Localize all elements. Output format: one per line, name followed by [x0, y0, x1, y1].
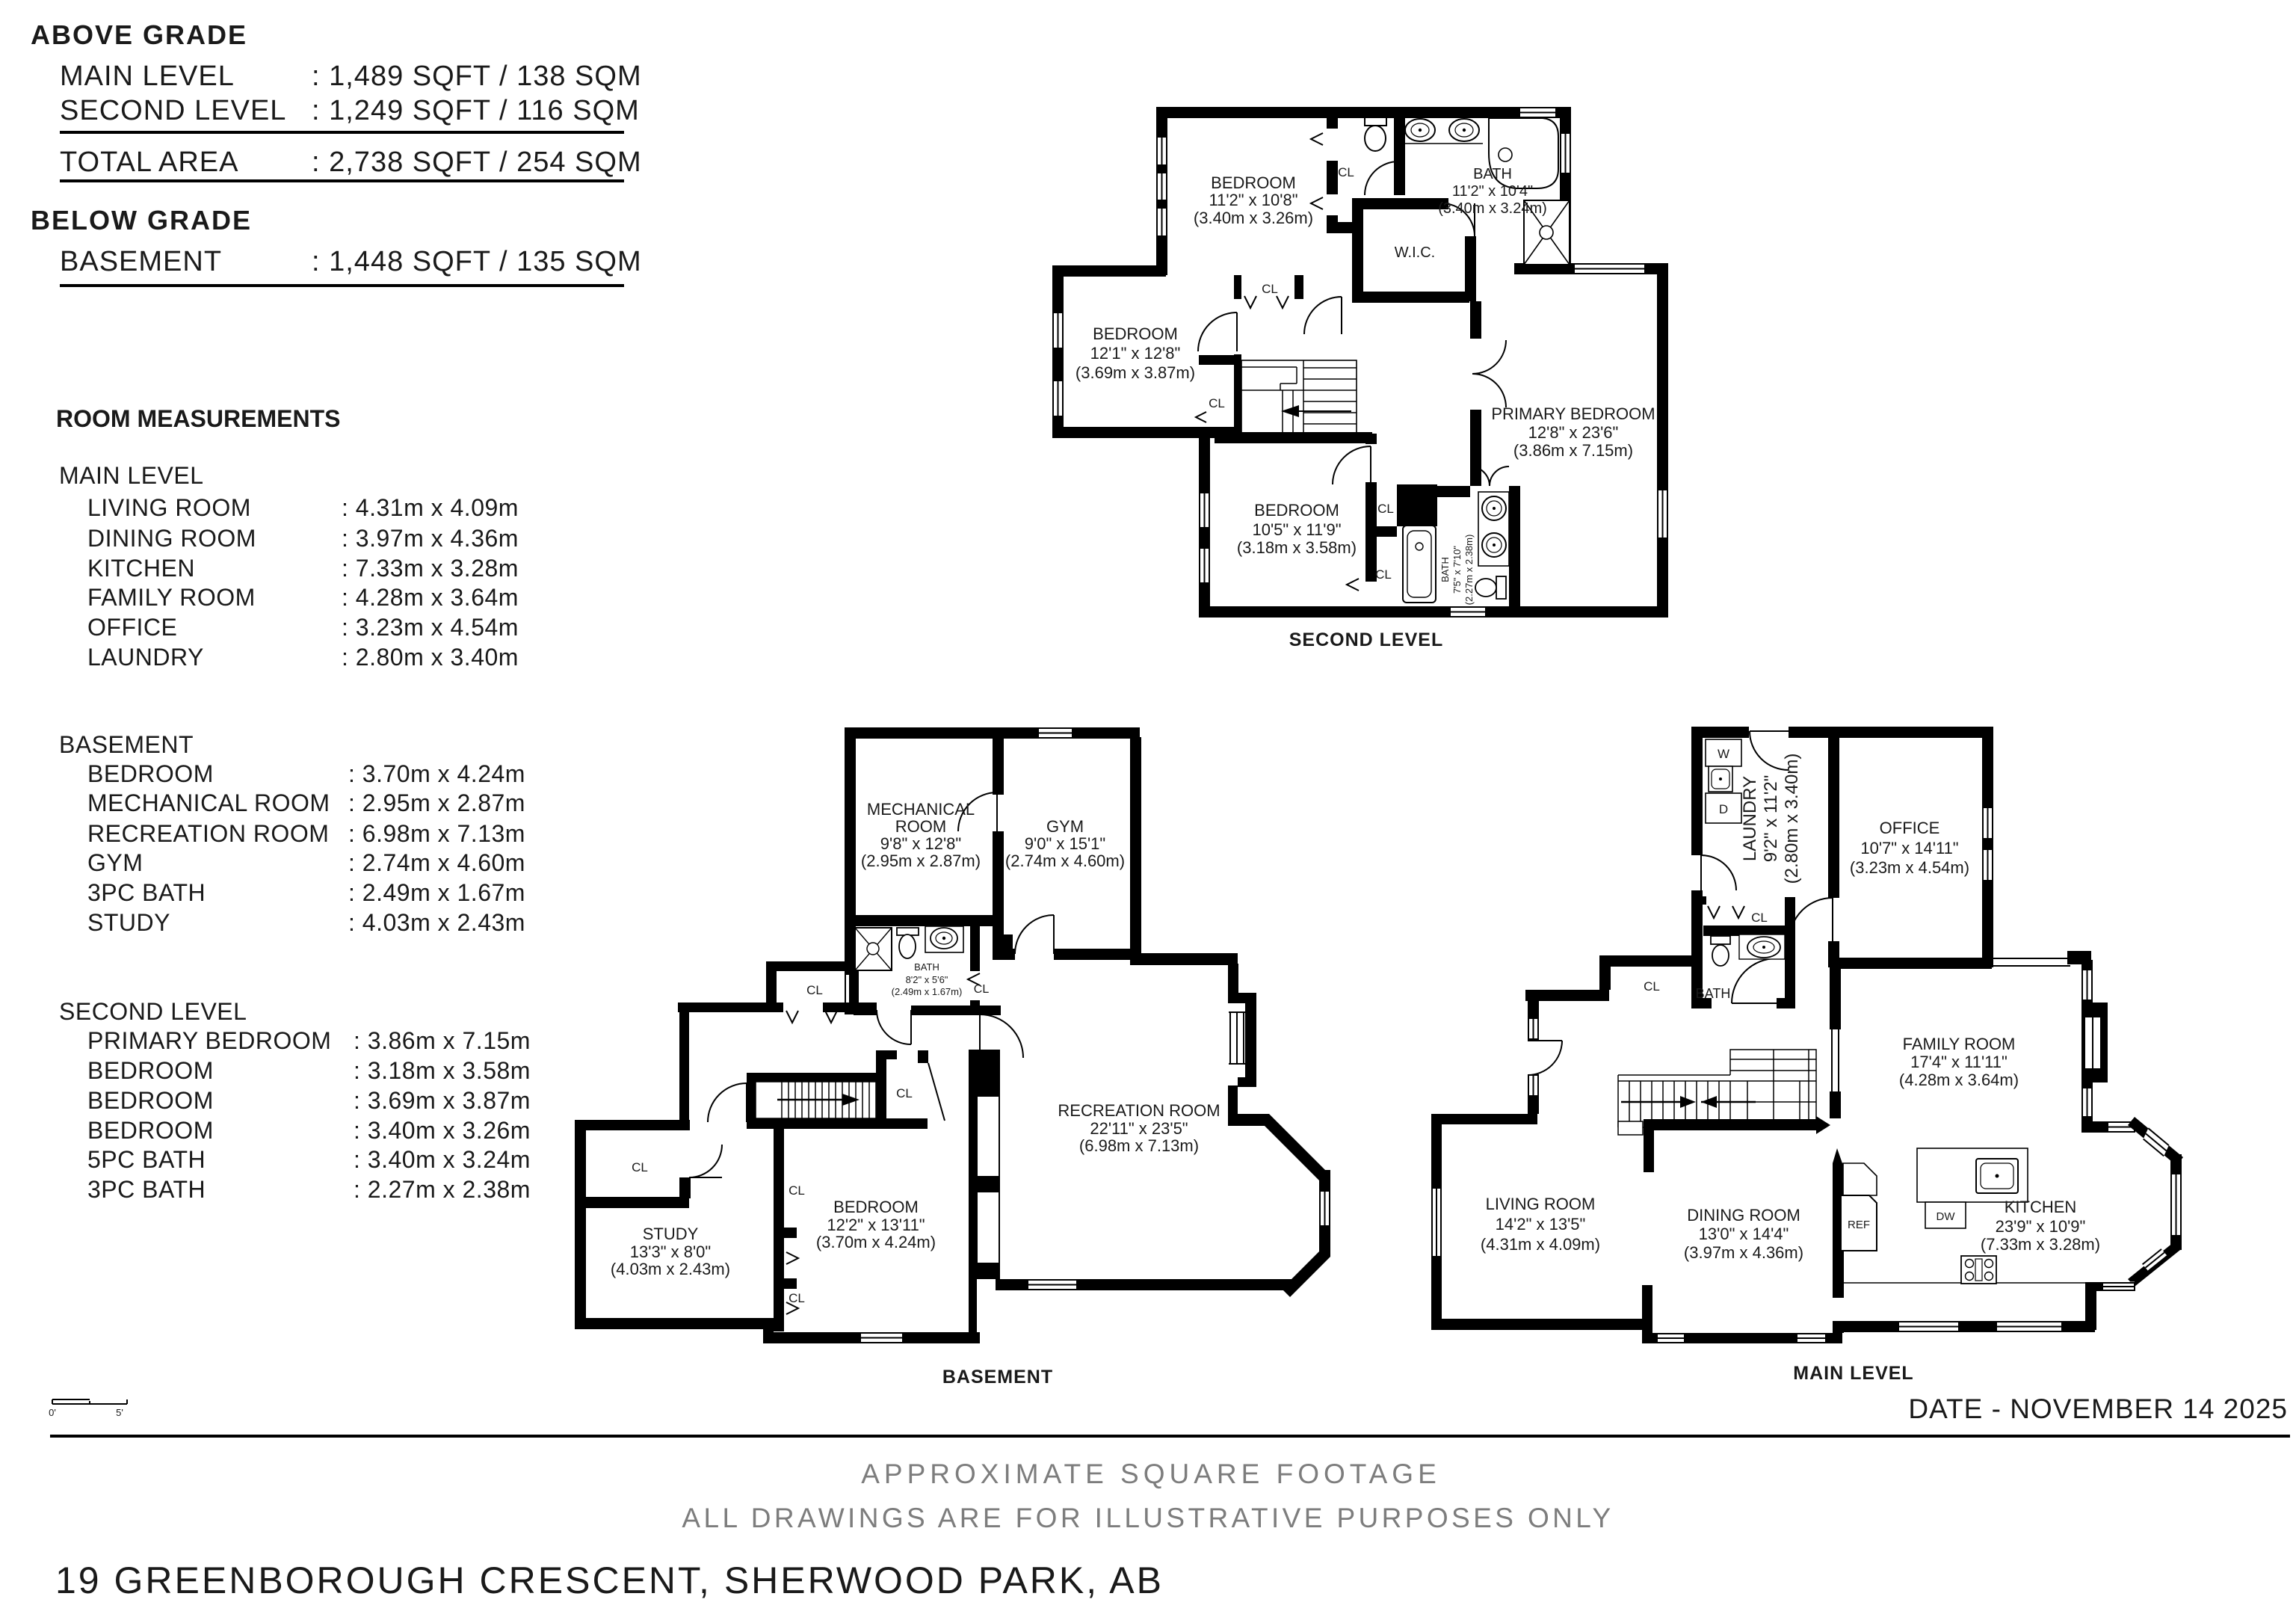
svg-text:: 4.28m x 3.64m: : 4.28m x 3.64m [342, 584, 519, 611]
svg-text:: 3.69m x 3.87m: : 3.69m x 3.87m [354, 1087, 531, 1114]
svg-text:(2.49m x 1.67m): (2.49m x 1.67m) [892, 986, 963, 997]
svg-text:BASEMENT: BASEMENT [60, 246, 222, 277]
svg-text:CL: CL [789, 1291, 805, 1305]
svg-text:: 1,249 SQFT / 116 SQM: : 1,249 SQFT / 116 SQM [312, 95, 640, 126]
svg-text:BEDROOM: BEDROOM [833, 1198, 919, 1216]
svg-text:(2.95m x 2.87m): (2.95m x 2.87m) [861, 851, 981, 870]
svg-text:0': 0' [49, 1407, 56, 1418]
svg-text:OFFICE: OFFICE [87, 614, 177, 641]
svg-text:GYM: GYM [1046, 817, 1084, 836]
svg-text:: 2.27m x 2.38m: : 2.27m x 2.38m [354, 1176, 531, 1203]
svg-text:RECREATION ROOM: RECREATION ROOM [1058, 1101, 1220, 1120]
svg-text:BEDROOM: BEDROOM [87, 760, 214, 787]
svg-text:: 2,738 SQFT / 254 SQM: : 2,738 SQFT / 254 SQM [312, 147, 642, 178]
svg-text:DINING ROOM: DINING ROOM [87, 525, 256, 552]
svg-text:GYM: GYM [87, 849, 143, 876]
svg-text:BEDROOM: BEDROOM [87, 1087, 214, 1114]
svg-text:DINING ROOM: DINING ROOM [1687, 1206, 1800, 1225]
svg-text:CL: CL [1644, 979, 1660, 994]
svg-text:MAIN LEVEL: MAIN LEVEL [60, 61, 235, 92]
svg-text:BATH: BATH [1473, 166, 1512, 182]
svg-text:11'2" x 10'4": 11'2" x 10'4" [1452, 183, 1533, 200]
svg-text:: 3.18m x 3.58m: : 3.18m x 3.58m [354, 1057, 531, 1084]
svg-text:CL: CL [1262, 282, 1278, 296]
svg-text:MECHANICAL ROOM: MECHANICAL ROOM [87, 789, 330, 816]
svg-text:ROOM MEASUREMENTS: ROOM MEASUREMENTS [56, 405, 340, 432]
svg-text:KITCHEN: KITCHEN [2005, 1198, 2077, 1216]
svg-text:3PC BATH: 3PC BATH [87, 879, 206, 906]
svg-text:22'11" x 23'5": 22'11" x 23'5" [1090, 1119, 1188, 1138]
svg-text:: 2.80m x 3.40m: : 2.80m x 3.40m [342, 644, 519, 671]
svg-text:10'5" x 11'9": 10'5" x 11'9" [1252, 520, 1341, 539]
svg-text:: 3.70m x 4.24m: : 3.70m x 4.24m [348, 760, 525, 787]
svg-text:BEDROOM: BEDROOM [1254, 501, 1339, 520]
svg-text:13'0" x 14'4": 13'0" x 14'4" [1699, 1225, 1789, 1243]
svg-text:BELOW GRADE: BELOW GRADE [31, 205, 252, 235]
svg-text:APPROXIMATE SQUARE FOOTAGE: APPROXIMATE SQUARE FOOTAGE [861, 1459, 1441, 1489]
svg-text:(7.33m x 3.28m): (7.33m x 3.28m) [1981, 1235, 2100, 1254]
svg-text:BASEMENT: BASEMENT [942, 1367, 1053, 1388]
svg-text:(2.27m x 2.38m): (2.27m x 2.38m) [1463, 535, 1475, 606]
svg-text:23'9" x 10'9": 23'9" x 10'9" [1996, 1217, 2086, 1236]
svg-text:CL: CL [789, 1183, 805, 1198]
svg-text:(2.80m x 3.40m): (2.80m x 3.40m) [1782, 754, 1802, 884]
svg-text:(4.31m x 4.09m): (4.31m x 4.09m) [1481, 1235, 1600, 1254]
svg-text:STUDY: STUDY [643, 1225, 699, 1243]
svg-text:CL: CL [1375, 567, 1392, 582]
svg-text:: 6.98m x 7.13m: : 6.98m x 7.13m [348, 820, 525, 847]
svg-text:W: W [1718, 747, 1729, 761]
svg-text:ABOVE GRADE: ABOVE GRADE [31, 19, 247, 50]
svg-text:11'2" x 10'8": 11'2" x 10'8" [1209, 191, 1297, 209]
svg-text:FAMILY ROOM: FAMILY ROOM [87, 584, 256, 611]
svg-text:5': 5' [116, 1407, 123, 1418]
svg-text:9'2" x 11'2": 9'2" x 11'2" [1761, 775, 1781, 863]
svg-text:CL: CL [806, 983, 823, 997]
svg-text:12'1" x 12'8": 12'1" x 12'8" [1090, 344, 1181, 363]
svg-text:19 GREENBOROUGH CRESCENT, SHER: 19 GREENBOROUGH CRESCENT, SHERWOOD PARK,… [55, 1559, 1164, 1601]
svg-text:MECHANICAL: MECHANICAL [867, 800, 975, 819]
svg-text:LAUNDRY: LAUNDRY [1740, 776, 1760, 861]
svg-text:BATH: BATH [1439, 557, 1451, 582]
svg-text:OFFICE: OFFICE [1880, 819, 1940, 837]
svg-text:LAUNDRY: LAUNDRY [87, 644, 204, 671]
svg-text:13'3" x 8'0": 13'3" x 8'0" [630, 1242, 711, 1261]
svg-text:: 4.31m x 4.09m: : 4.31m x 4.09m [342, 494, 519, 521]
svg-text:3PC BATH: 3PC BATH [87, 1176, 206, 1203]
svg-text:: 3.86m x 7.15m: : 3.86m x 7.15m [354, 1027, 531, 1054]
svg-text:(6.98m x 7.13m): (6.98m x 7.13m) [1079, 1136, 1199, 1155]
svg-text:CL: CL [632, 1160, 648, 1174]
svg-text:8'2" x 5'6": 8'2" x 5'6" [906, 974, 948, 985]
svg-text:: 3.40m x 3.26m: : 3.40m x 3.26m [354, 1117, 531, 1144]
svg-text:LIVING ROOM: LIVING ROOM [87, 494, 251, 521]
svg-text:MAIN LEVEL: MAIN LEVEL [59, 462, 204, 489]
svg-text:SECOND LEVEL: SECOND LEVEL [60, 95, 286, 126]
svg-text:9'0" x 15'1": 9'0" x 15'1" [1025, 834, 1105, 853]
svg-text:FAMILY ROOM: FAMILY ROOM [1903, 1035, 2016, 1053]
svg-text:(3.70m x 4.24m): (3.70m x 4.24m) [816, 1233, 936, 1251]
svg-text:(4.03m x 2.43m): (4.03m x 2.43m) [611, 1260, 730, 1278]
svg-text:LIVING ROOM: LIVING ROOM [1486, 1195, 1596, 1213]
svg-text:(3.40m x 3.26m): (3.40m x 3.26m) [1194, 209, 1313, 227]
svg-text:(3.18m x 3.58m): (3.18m x 3.58m) [1237, 538, 1357, 557]
svg-text:BASEMENT: BASEMENT [59, 731, 194, 758]
svg-text:: 3.97m x 4.36m: : 3.97m x 4.36m [342, 525, 519, 552]
svg-text:: 7.33m x 3.28m: : 7.33m x 3.28m [342, 555, 519, 582]
svg-text:(3.40m x 3.24m): (3.40m x 3.24m) [1438, 200, 1547, 217]
svg-text:: 2.74m x 4.60m: : 2.74m x 4.60m [348, 849, 525, 876]
svg-text:CL: CL [1209, 396, 1225, 410]
svg-text:CL: CL [1338, 165, 1354, 179]
svg-text:KITCHEN: KITCHEN [87, 555, 195, 582]
svg-text:(3.97m x 4.36m): (3.97m x 4.36m) [1684, 1243, 1803, 1262]
svg-text:(3.23m x 4.54m): (3.23m x 4.54m) [1850, 858, 1969, 877]
svg-text:14'2" x 13'5": 14'2" x 13'5" [1496, 1215, 1586, 1234]
svg-text:DW: DW [1937, 1210, 1956, 1223]
svg-text:(3.86m x 7.15m): (3.86m x 7.15m) [1513, 441, 1633, 460]
svg-text:ROOM: ROOM [895, 817, 946, 836]
svg-text:BEDROOM: BEDROOM [87, 1057, 214, 1084]
svg-text:(3.69m x 3.87m): (3.69m x 3.87m) [1076, 363, 1195, 382]
svg-text:STUDY: STUDY [87, 909, 170, 936]
svg-text:5PC BATH: 5PC BATH [87, 1146, 206, 1173]
svg-text:: 1,489 SQFT / 138 SQM: : 1,489 SQFT / 138 SQM [312, 61, 642, 92]
svg-text:CL: CL [974, 983, 990, 996]
svg-text:W.I.C.: W.I.C. [1395, 244, 1435, 261]
svg-text:ALL DRAWINGS ARE FOR ILLUSTRAT: ALL DRAWINGS ARE FOR ILLUSTRATIVE PURPOS… [682, 1503, 1614, 1533]
svg-text:7'5" x 7'10": 7'5" x 7'10" [1451, 546, 1463, 594]
svg-text:: 3.23m x 4.54m: : 3.23m x 4.54m [342, 614, 519, 641]
svg-text:17'4" x 11'11": 17'4" x 11'11" [1910, 1053, 2008, 1071]
svg-text:(2.74m x 4.60m): (2.74m x 4.60m) [1005, 851, 1125, 870]
svg-text:12'8" x 23'6": 12'8" x 23'6" [1528, 423, 1619, 442]
svg-text:BATH: BATH [914, 961, 939, 973]
svg-text:PRIMARY BEDROOM: PRIMARY BEDROOM [87, 1027, 331, 1054]
svg-text:TOTAL AREA: TOTAL AREA [60, 147, 238, 178]
svg-text:CL: CL [1751, 911, 1768, 925]
svg-text:SECOND LEVEL: SECOND LEVEL [59, 998, 247, 1025]
svg-text:SECOND LEVEL: SECOND LEVEL [1289, 629, 1443, 650]
svg-text:REF: REF [1848, 1219, 1870, 1231]
svg-text:RECREATION ROOM: RECREATION ROOM [87, 820, 329, 847]
svg-text:: 1,448 SQFT / 135 SQM: : 1,448 SQFT / 135 SQM [312, 246, 642, 277]
svg-text:BEDROOM: BEDROOM [87, 1117, 214, 1144]
svg-text:BATH: BATH [1696, 986, 1731, 1001]
svg-text:BEDROOM: BEDROOM [1093, 324, 1178, 343]
svg-text:CL: CL [896, 1086, 913, 1100]
svg-text:(4.28m x 3.64m): (4.28m x 3.64m) [1899, 1071, 2019, 1089]
svg-text:BEDROOM: BEDROOM [1211, 173, 1296, 192]
svg-text:: 2.49m x 1.67m: : 2.49m x 1.67m [348, 879, 525, 906]
svg-text:D: D [1719, 802, 1728, 816]
svg-text:MAIN LEVEL: MAIN LEVEL [1793, 1363, 1913, 1384]
svg-text:CL: CL [1377, 502, 1394, 516]
svg-text:DATE - NOVEMBER 14 2025: DATE - NOVEMBER 14 2025 [1908, 1393, 2288, 1424]
svg-text:PRIMARY BEDROOM: PRIMARY BEDROOM [1491, 404, 1655, 423]
svg-text:: 3.40m x 3.24m: : 3.40m x 3.24m [354, 1146, 531, 1173]
svg-text:12'2" x 13'11": 12'2" x 13'11" [827, 1216, 925, 1234]
svg-text:: 2.95m x 2.87m: : 2.95m x 2.87m [348, 789, 525, 816]
svg-text:: 4.03m x 2.43m: : 4.03m x 2.43m [348, 909, 525, 936]
svg-text:10'7" x 14'11": 10'7" x 14'11" [1860, 839, 1958, 857]
svg-text:9'8" x 12'8": 9'8" x 12'8" [880, 834, 961, 853]
